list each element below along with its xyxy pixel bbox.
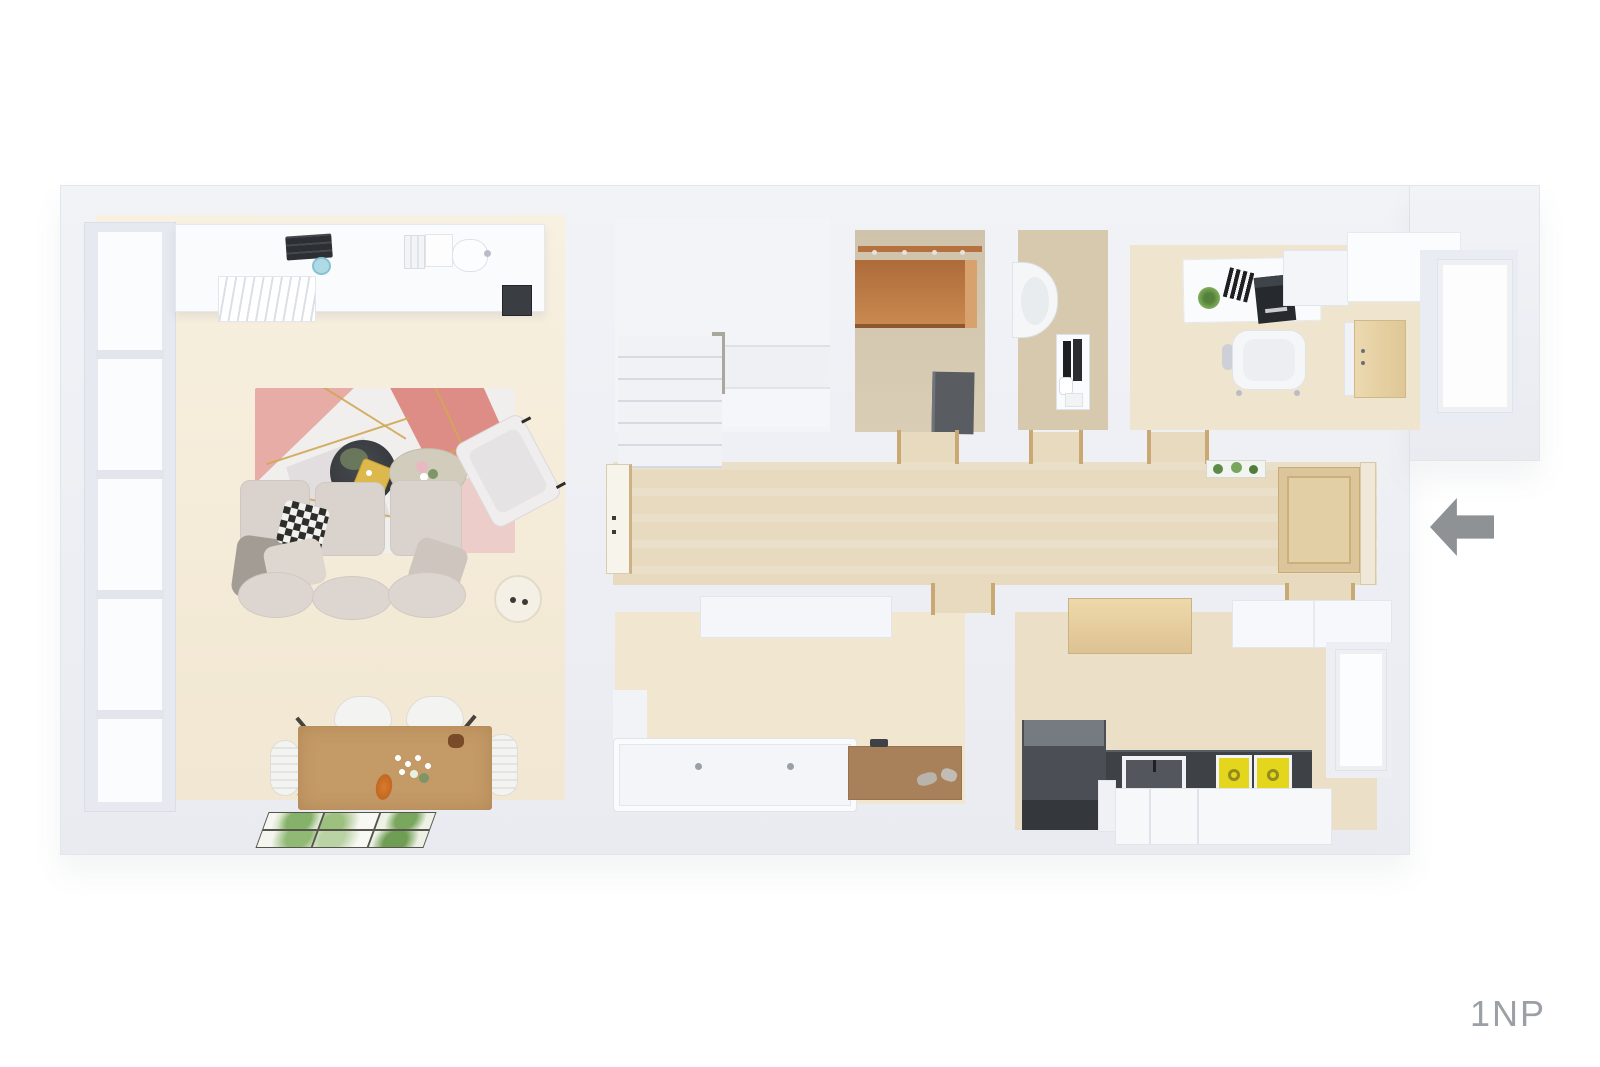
kettle — [312, 257, 331, 275]
dining-table — [298, 726, 492, 810]
chair-wheel — [1236, 390, 1242, 396]
pouf-detail — [510, 597, 516, 603]
appliance-front — [1022, 800, 1106, 830]
stair-tread — [618, 336, 722, 358]
door-jamb — [1205, 430, 1209, 464]
bath-faucet — [870, 739, 888, 747]
utility-island — [1115, 788, 1332, 845]
kitchen-dish-rack — [218, 276, 316, 322]
sofa-seat-cushion — [238, 572, 314, 618]
office-chair — [1232, 330, 1306, 390]
pouf — [494, 575, 542, 623]
plant-blob — [1213, 464, 1223, 474]
wc-shelf-box — [1065, 393, 1083, 407]
toilet-bowl — [1021, 277, 1049, 325]
plant-blob — [1231, 462, 1242, 473]
wardrobe-cabinet-dark — [931, 372, 974, 435]
radiator-mark — [612, 516, 616, 520]
sofa-seat-cushion — [312, 576, 392, 620]
utility-wood-cabinet — [1068, 598, 1192, 654]
art-tile — [375, 813, 435, 829]
doorway-office — [1150, 432, 1206, 462]
door-jamb — [955, 430, 959, 464]
dining-chair — [270, 740, 300, 796]
bathroom-top-cabinet — [700, 596, 892, 638]
art-tile — [319, 813, 379, 829]
machine-door-ring — [1228, 769, 1240, 781]
kitchen-wall-panel — [502, 285, 532, 316]
office-chair-seat — [1243, 339, 1295, 381]
sofa-seat-cushion — [388, 572, 466, 618]
bath-item — [939, 767, 958, 784]
wardrobe-shelf — [855, 260, 977, 328]
bath-item — [916, 771, 938, 788]
office-window-pane — [1438, 260, 1512, 412]
door-jamb — [1079, 430, 1083, 464]
office-cabinet — [1283, 250, 1349, 306]
appliance-lid — [1024, 720, 1104, 746]
stair-tread — [618, 424, 722, 446]
radiator-mark — [612, 530, 616, 534]
sink-faucet — [484, 250, 491, 257]
office-plant — [1198, 287, 1220, 309]
door-jamb — [1147, 430, 1151, 464]
cabinet-knob — [1361, 361, 1365, 365]
cutting-board — [404, 235, 425, 269]
utility-white-cabinet — [1232, 600, 1392, 648]
table-centerpiece-flowers — [390, 752, 438, 786]
hallway-door-leaf — [606, 464, 632, 574]
table-decor — [448, 734, 464, 748]
side-table-flowers — [416, 461, 428, 473]
kitchen-sink — [452, 239, 488, 272]
utility-window-pane — [1336, 650, 1386, 770]
entry-shelf-plants — [1206, 460, 1266, 478]
doorway-wardrobe — [900, 432, 956, 462]
wardrobe-hook — [932, 250, 937, 255]
door-jamb — [931, 583, 935, 615]
tray-bottle — [366, 470, 372, 476]
side-table-flowers — [428, 469, 438, 479]
wc-shelf-unit — [1056, 334, 1090, 410]
wc-shelf-item — [1073, 339, 1082, 381]
door-jamb — [1029, 430, 1033, 464]
stair-tread — [618, 402, 722, 424]
chair-wheel — [1294, 390, 1300, 396]
wardrobe-hook — [902, 250, 907, 255]
island-divider — [1149, 789, 1151, 844]
stair-upper-step — [722, 345, 830, 387]
bath-mat — [848, 746, 962, 800]
sink-tap — [1153, 760, 1156, 772]
bathtub-drain — [695, 763, 702, 770]
cabinet-divider — [1313, 601, 1315, 647]
wc-shelf-item — [1063, 341, 1071, 379]
plant-blob — [1249, 465, 1258, 474]
art-tile — [257, 831, 317, 847]
living-window-mullion — [96, 350, 164, 359]
door-jamb — [897, 430, 901, 464]
entrance-door-frame — [1360, 462, 1376, 585]
sofa — [236, 480, 468, 620]
entrance-door — [1278, 467, 1360, 573]
wall-art-leaf-panels — [255, 812, 436, 848]
machine-door-ring — [1267, 769, 1279, 781]
utility-island-return — [1098, 780, 1116, 832]
office-wood-cabinet — [1354, 320, 1406, 398]
printer-slot — [1265, 307, 1287, 313]
stair-tread — [618, 380, 722, 402]
utility-appliance-dark — [1022, 720, 1106, 830]
hallway-floor — [613, 462, 1377, 585]
living-window-mullion — [96, 470, 164, 479]
art-tile — [369, 831, 429, 847]
pouf-detail — [522, 599, 528, 605]
living-window-mullion — [96, 590, 164, 599]
island-divider — [1197, 789, 1199, 844]
doorway-wc — [1032, 432, 1080, 462]
wardrobe-shelf-edge — [965, 260, 977, 328]
floor-label: 1NP — [1440, 993, 1546, 1035]
floor-plan-page: 1NP — [0, 0, 1600, 1067]
entrance-door-panel — [1287, 476, 1351, 564]
bathtub-drain — [787, 763, 794, 770]
art-tile — [263, 813, 323, 829]
kitchen-appliance-box — [425, 234, 453, 267]
stair-tread — [618, 358, 722, 380]
wardrobe-hook — [960, 250, 965, 255]
bathtub — [613, 738, 857, 812]
cooktop — [285, 233, 333, 260]
cabinet-knob — [1361, 349, 1365, 353]
living-window-mullion — [96, 710, 164, 719]
stair-tread — [618, 446, 722, 468]
door-jamb — [991, 583, 995, 615]
doorway-bathroom — [934, 585, 992, 613]
entrance-arrow-icon — [1430, 498, 1494, 556]
art-tile — [313, 831, 373, 847]
stair-upper-step — [722, 387, 830, 427]
wardrobe-hook — [872, 250, 877, 255]
